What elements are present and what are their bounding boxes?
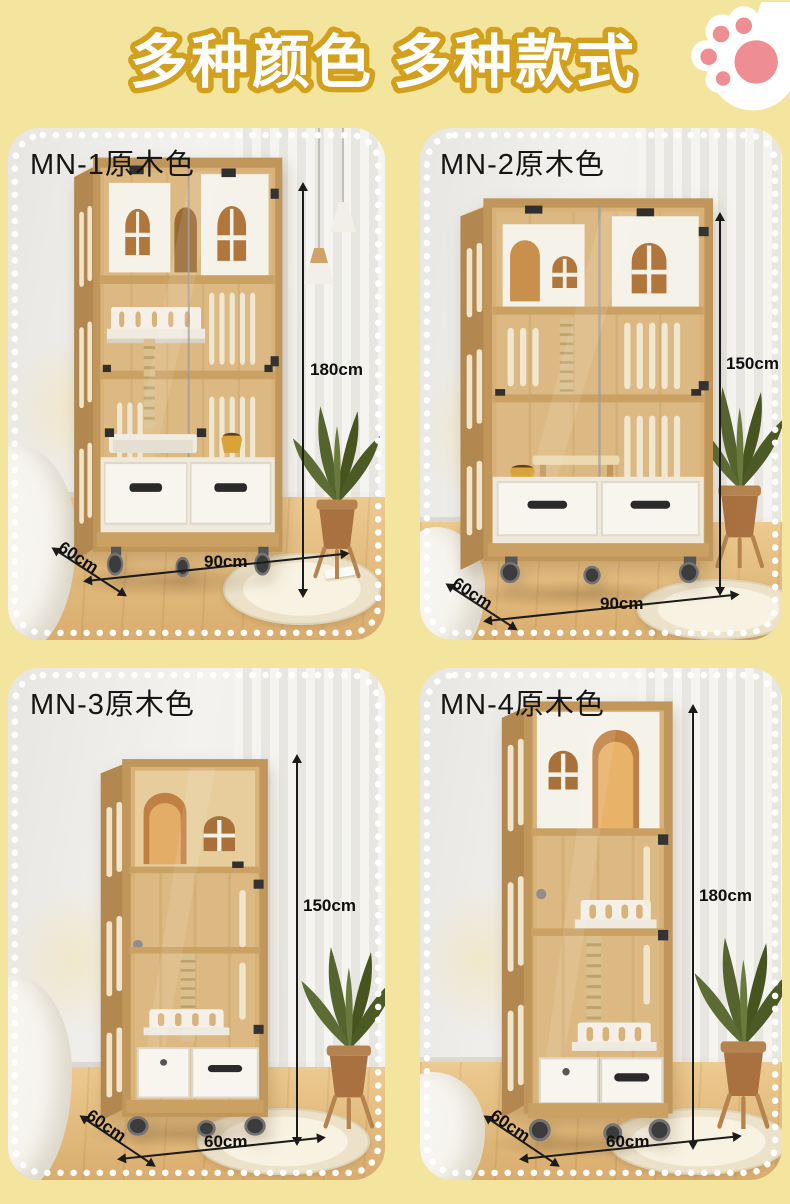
height-dimension-line — [296, 756, 298, 1144]
height-dimension-label: 150cm — [726, 354, 779, 374]
height-dimension-line — [692, 706, 694, 1148]
plant-icon — [295, 934, 385, 1129]
model-label: MN-1原木色 — [30, 141, 195, 183]
promo-poster: 多种颜色 多种款式 — [0, 0, 790, 1204]
height-dimension-label: 180cm — [699, 886, 752, 906]
cat-cage-illustration-mn3 — [95, 750, 272, 1154]
height-dimension-label: 150cm — [303, 896, 356, 916]
panel-mn1: MN-1原木色 180cm 90cm 60cm — [8, 128, 385, 640]
height-dimension-line — [302, 184, 304, 596]
cat-cage-illustration-mn4 — [496, 691, 677, 1157]
page-title-text: 多种颜色 多种款式 — [130, 30, 637, 95]
cat-cage-illustration-mn1 — [68, 154, 283, 605]
page-title: 多种颜色 多种款式 — [128, 16, 672, 104]
drawers — [540, 1058, 663, 1103]
scratching-post — [587, 936, 602, 1029]
balcony-shelf-lower — [572, 1023, 657, 1051]
height-dimension-line — [719, 214, 721, 594]
model-label: MN-2原木色 — [440, 141, 605, 183]
height-dimension-label: 180cm — [310, 360, 363, 380]
plant-icon — [688, 924, 782, 1129]
balcony-shelf — [107, 307, 205, 343]
model-label: MN-4原木色 — [440, 681, 605, 723]
paw-shape — [691, 2, 790, 111]
food-bowl — [222, 432, 242, 452]
model-label: MN-3原木色 — [30, 681, 195, 723]
pendant-lamp — [304, 128, 334, 284]
cat-cage-illustration-mn2 — [453, 195, 714, 610]
width-dimension-label: 60cm — [606, 1132, 649, 1152]
panel-mn2: MN-2原木色 150cm 90cm 60cm — [420, 128, 782, 640]
panel-mn4: MN-4原木色 180cm 60cm 60cm — [420, 668, 782, 1180]
panel-mn3: MN-3原木色 150cm 60cm 60cm — [8, 668, 385, 1180]
paw-icon — [664, 2, 790, 126]
width-dimension-label: 60cm — [204, 1132, 247, 1152]
width-dimension-label: 90cm — [204, 552, 247, 572]
drawers — [138, 1048, 258, 1097]
width-dimension-label: 90cm — [600, 594, 643, 614]
cat-house-left — [109, 182, 170, 272]
cat-house-left — [502, 224, 584, 306]
